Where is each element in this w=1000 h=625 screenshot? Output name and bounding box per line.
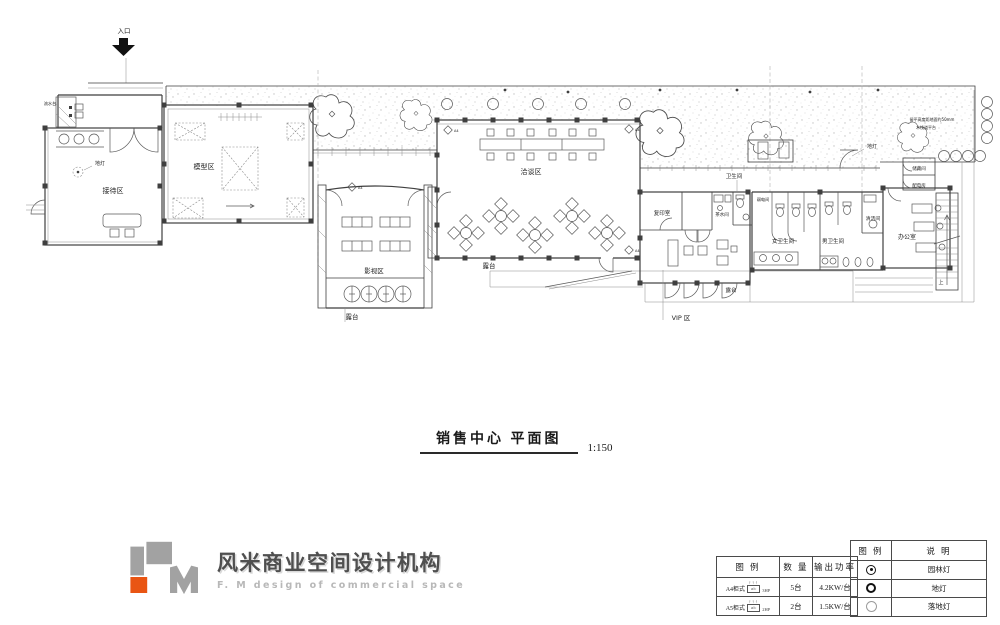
power-room-label: 配电房 [912,182,926,189]
ac-model: A4柜式 [726,587,745,593]
garden-areas [166,86,975,168]
toilet-label: 卫生间 [726,172,743,180]
ac-header-qty: 数 量 [780,557,813,578]
ac-model: A5柜式 [726,606,745,612]
ground-lamp-label: 地灯 [95,160,105,167]
table-row: 地灯 [851,579,987,598]
men-toilet-label: 男卫生间 [822,237,844,245]
reception-room [26,95,162,245]
logo-name-en: F. M design of commercial space [217,580,465,591]
weak-power-label: 弱电间 [757,196,770,203]
note-line2: 木栈道平台 [916,124,936,130]
model-room [164,105,313,223]
lounge-hall [428,120,640,272]
reception-label: 接待区 [103,186,124,195]
storage-label: 储藏间 [912,165,926,172]
ac-header-legend: 图 例 [717,557,780,578]
sink-label: 流水台 [44,100,57,107]
ac-hp: 2HP [762,608,770,613]
garden-light-icon [866,565,876,575]
ac-legend-table: 图 例 数 量 输出功率 A4柜式 ↑↑↑ a/c 3HP 5台 4.2KW/台… [716,556,858,616]
legend-label: 落地灯 [892,598,987,617]
cleaning-label: 清洁间 [866,215,881,222]
table-row: 落地灯 [851,598,987,617]
ac-hp: 3HP [762,589,770,594]
table-row: 园林灯 [851,561,987,580]
terrace-label: 露台 [483,261,496,270]
video-room [318,185,432,322]
drawing-sheet: A4 A4 A4 A4 入口 流水台 地灯 接待区 模型区 影视区 露台 洽谈区… [0,0,1000,625]
logo-name-cn: 风米商业空间设计机构 [217,547,465,577]
entrance-label: 入口 [118,27,131,35]
floor-light-icon [866,601,877,612]
video-area-label: 影视区 [364,266,384,275]
marker-label: A4 [454,129,459,133]
note-line1: 留平高度距地面约50mm [910,116,955,122]
drawing-scale: 1:150 [588,442,613,454]
entrance-arrow [88,38,163,88]
model-area-label: 模型区 [194,162,215,171]
ground-lamp-label: 地灯 [867,143,877,150]
ramp-walkway [490,271,933,302]
vip-label: VIP 区 [672,314,691,322]
terrace-label: 露台 [725,286,737,294]
light-legend-table: 图 例 说 明 园林灯 地灯 落地灯 [850,540,987,617]
logo-monogram-icon [124,536,204,602]
table-row: A5柜式 ↑↑↑ a/c 2HP 2台 1.5KW/台 [717,597,858,616]
ac-unit-icon: a/c [747,604,760,612]
marker-label: A4 [358,186,363,190]
ac-qty: 5台 [780,578,813,597]
legend-header-desc: 说 明 [892,541,987,561]
legend-header-symbol: 图 例 [851,541,892,561]
marker-label: A4 [635,128,640,132]
floor-plan: A4 A4 A4 A4 入口 流水台 地灯 接待区 模型区 影视区 露台 洽谈区… [0,0,1000,470]
legend-label: 园林灯 [892,561,987,580]
plan-labels: 入口 流水台 地灯 接待区 模型区 影视区 露台 洽谈区 露台 卫生间 复印室 … [44,27,955,322]
tea-room-label: 茶水间 [715,211,729,218]
copy-room-label: 复印室 [654,209,671,217]
office-label: 办公室 [898,233,916,241]
marker-label: A4 [635,249,640,253]
ac-unit-icon: a/c [747,585,760,593]
drawing-title-block: 销售中心 平面图 1:150 [420,428,613,454]
toilets-block [752,192,883,270]
lounge-label: 洽谈区 [521,167,542,176]
terrace-label: 露台 [346,312,359,321]
drawing-title: 销售中心 平面图 [420,428,578,454]
women-toilet-label: 女卫生间 [772,237,794,245]
ac-qty: 2台 [780,597,813,616]
stairs-up-label: 上 [938,279,943,286]
table-row: A4柜式 ↑↑↑ a/c 3HP 5台 4.2KW/台 [717,578,858,597]
ground-light-icon [866,583,876,593]
company-logo: 风米商业空间设计机构 F. M design of commercial spa… [124,536,465,602]
legend-label: 地灯 [892,579,987,598]
